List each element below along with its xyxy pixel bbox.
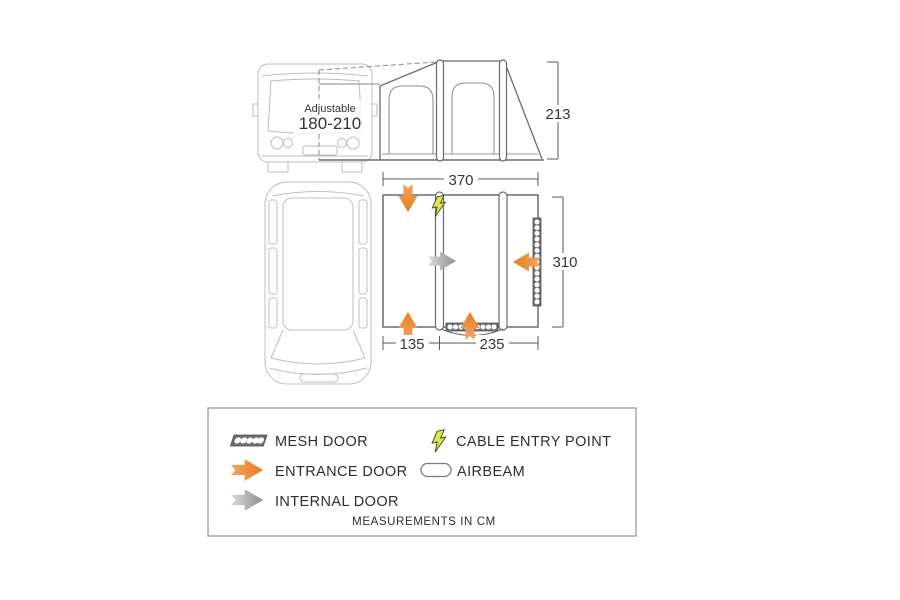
mesh-door-icon xyxy=(230,435,267,446)
awning-plan-view xyxy=(383,184,541,340)
awning-diagram: Adjustable 180-210 213 370 xyxy=(0,0,900,600)
airbeam-side-1 xyxy=(437,60,444,161)
van-top-rear-line xyxy=(272,192,364,197)
internal-door-label: INTERNAL DOOR xyxy=(275,494,399,510)
airbeam-icon xyxy=(421,464,451,477)
van-top-roof xyxy=(283,198,353,330)
side-window-right xyxy=(452,83,494,154)
van-front-wheel-left xyxy=(268,162,288,172)
side-window-left xyxy=(389,86,433,154)
van-mirror-right xyxy=(372,104,377,116)
adjustable-range-label: 180-210 xyxy=(299,114,361,133)
airbeam-side-2 xyxy=(500,60,507,161)
cable-entry-point-label: CABLE ENTRY POINT xyxy=(456,434,611,450)
van-top-windshield xyxy=(271,358,365,364)
van-front-wheel-right xyxy=(342,162,362,172)
van-front-plate xyxy=(303,146,337,155)
left-section-dimension-label: 135 xyxy=(399,336,424,353)
van-top-grille xyxy=(300,374,338,382)
entrance-door-label: ENTRANCE DOOR xyxy=(275,464,408,480)
van-mirror-left xyxy=(253,104,258,116)
airbeam-plan-2 xyxy=(499,192,507,330)
height-dimension-label: 213 xyxy=(545,106,570,123)
awning-dimensions-page: Adjustable 180-210 213 370 xyxy=(0,0,900,600)
width-dimension-label: 370 xyxy=(448,172,473,189)
van-top-view xyxy=(265,182,371,384)
van-front-roofline xyxy=(262,73,368,76)
van-label: Adjustable 180-210 xyxy=(294,100,366,134)
mesh-door-label: MESH DOOR xyxy=(275,434,368,450)
measurements-note: MEASUREMENTS IN CM xyxy=(352,516,496,528)
airbeam-label: AIRBEAM xyxy=(457,464,525,480)
depth-dimension-label: 310 xyxy=(552,254,577,271)
legend: MESH DOOR CABLE ENTRY POINT ENTRANCE DOO… xyxy=(208,408,636,536)
right-section-dimension-label: 235 xyxy=(479,336,504,353)
van-top-body xyxy=(265,182,371,384)
